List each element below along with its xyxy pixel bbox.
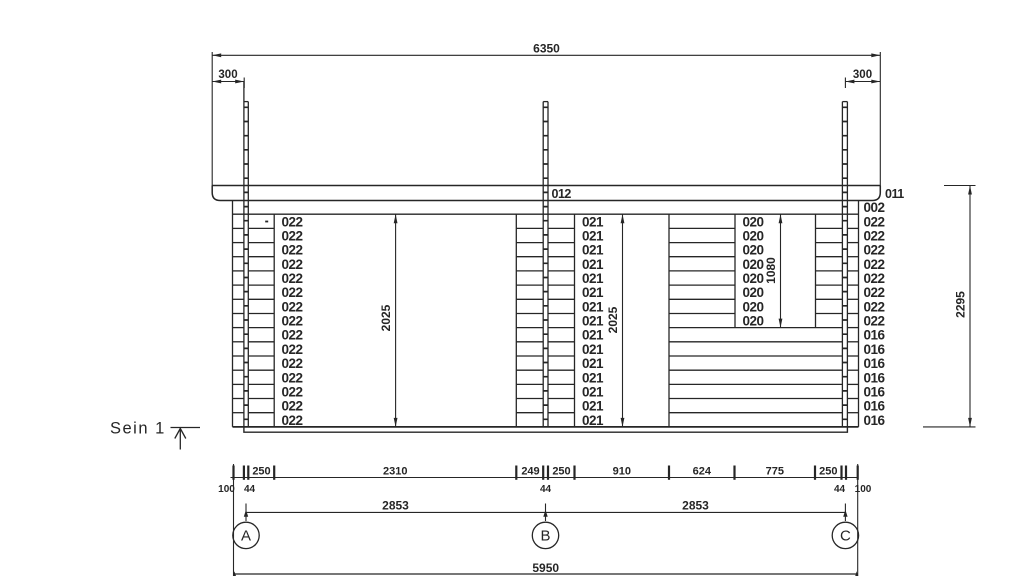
svg-text:022: 022 (282, 370, 303, 385)
svg-text:020: 020 (743, 214, 764, 229)
svg-text:021: 021 (582, 243, 604, 258)
svg-text:020: 020 (743, 243, 764, 258)
svg-text:2310: 2310 (383, 466, 407, 478)
svg-text:016: 016 (864, 370, 886, 385)
svg-text:250: 250 (252, 466, 270, 478)
svg-text:021: 021 (582, 271, 604, 286)
svg-text:021: 021 (582, 214, 604, 229)
svg-text:624: 624 (693, 466, 712, 478)
svg-text:2295: 2295 (954, 291, 968, 318)
svg-text:44: 44 (540, 484, 552, 495)
svg-text:022: 022 (864, 314, 885, 329)
svg-text:016: 016 (864, 413, 886, 428)
svg-text:020: 020 (743, 229, 764, 244)
svg-text:020: 020 (743, 299, 764, 314)
svg-text:022: 022 (282, 285, 303, 300)
svg-text:2853: 2853 (682, 499, 709, 513)
svg-text:021: 021 (582, 299, 604, 314)
svg-text:016: 016 (864, 356, 886, 371)
svg-text:020: 020 (743, 285, 764, 300)
svg-text:6350: 6350 (533, 41, 560, 55)
svg-text:022: 022 (282, 271, 303, 286)
svg-text:022: 022 (282, 214, 303, 229)
svg-text:016: 016 (864, 328, 886, 343)
svg-text:022: 022 (864, 285, 885, 300)
svg-text:020: 020 (743, 257, 764, 272)
svg-text:022: 022 (864, 214, 885, 229)
svg-text:44: 44 (244, 484, 256, 495)
svg-text:022: 022 (282, 229, 303, 244)
svg-text:021: 021 (582, 370, 604, 385)
svg-text:021: 021 (582, 399, 604, 414)
svg-text:022: 022 (282, 243, 303, 258)
svg-text:002: 002 (864, 200, 885, 215)
svg-text:021: 021 (582, 356, 604, 371)
svg-text:2025: 2025 (379, 304, 393, 331)
svg-text:1080: 1080 (764, 257, 778, 284)
svg-text:022: 022 (282, 257, 303, 272)
svg-text:021: 021 (582, 413, 604, 428)
svg-text:022: 022 (864, 243, 885, 258)
svg-text:021: 021 (582, 384, 604, 399)
svg-text:2853: 2853 (382, 499, 409, 513)
svg-text:B: B (540, 528, 550, 545)
svg-text:2025: 2025 (606, 306, 620, 333)
svg-text:022: 022 (282, 342, 303, 357)
svg-text:021: 021 (582, 229, 604, 244)
svg-text:011: 011 (885, 187, 904, 201)
svg-text:775: 775 (766, 466, 784, 478)
svg-text:022: 022 (282, 356, 303, 371)
svg-text:022: 022 (282, 328, 303, 343)
svg-text:300: 300 (218, 69, 237, 81)
svg-text:44: 44 (834, 484, 846, 495)
svg-text:910: 910 (613, 466, 631, 478)
svg-text:022: 022 (282, 413, 303, 428)
svg-text:022: 022 (864, 257, 885, 272)
svg-text:250: 250 (819, 466, 837, 478)
svg-text:020: 020 (743, 271, 764, 286)
svg-text:022: 022 (282, 384, 303, 399)
svg-text:249: 249 (521, 466, 539, 478)
svg-text:022: 022 (864, 299, 885, 314)
svg-text:100: 100 (218, 484, 235, 495)
svg-text:012: 012 (552, 187, 572, 201)
svg-text:021: 021 (582, 314, 604, 329)
svg-text:020: 020 (743, 314, 764, 329)
svg-text:022: 022 (864, 271, 885, 286)
svg-text:021: 021 (582, 328, 604, 343)
svg-text:A: A (241, 528, 251, 545)
svg-text:021: 021 (582, 342, 604, 357)
svg-text:5950: 5950 (532, 561, 559, 575)
svg-text:016: 016 (864, 399, 886, 414)
svg-text:Sein 1: Sein 1 (110, 420, 166, 438)
svg-text:022: 022 (282, 314, 303, 329)
svg-text:022: 022 (282, 399, 303, 414)
svg-text:022: 022 (864, 229, 885, 244)
svg-text:300: 300 (853, 69, 872, 81)
svg-text:C: C (840, 528, 851, 545)
svg-text:016: 016 (864, 384, 886, 399)
svg-text:021: 021 (582, 257, 604, 272)
svg-text:016: 016 (864, 342, 886, 357)
svg-text:022: 022 (282, 299, 303, 314)
svg-text:250: 250 (552, 466, 570, 478)
svg-text:021: 021 (582, 285, 604, 300)
